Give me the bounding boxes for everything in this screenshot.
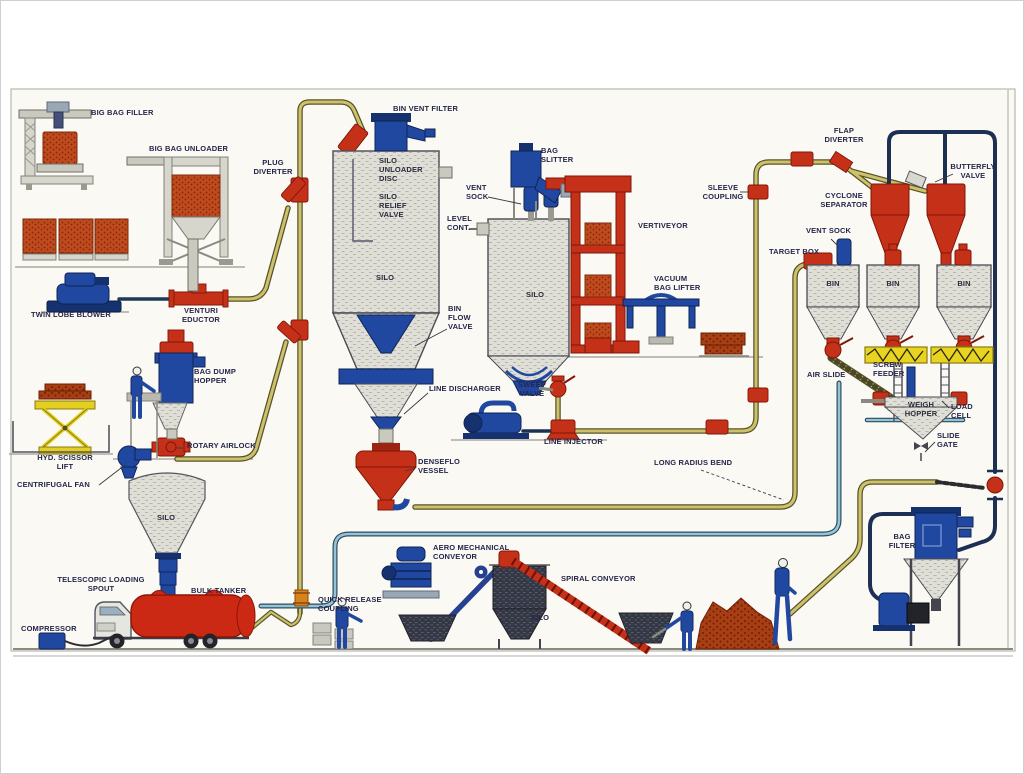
quick-release-coupling <box>293 590 310 606</box>
label-air-slide: AIR SLIDE <box>807 371 845 380</box>
label-target-box: TARGET BOX <box>769 248 819 257</box>
label-vent-sock-right: VENT SOCK <box>806 227 851 236</box>
label-bin-1: BIN <box>826 280 839 289</box>
label-quick-release-coupling: QUICK RELEASE COUPLING <box>318 596 382 614</box>
label-vertiveyor: VERTIVEYOR <box>638 222 688 231</box>
label-bag-slitter: BAG SLITTER <box>541 147 573 165</box>
label-big-bag-unloader: BIG BAG UNLOADER <box>149 145 228 154</box>
label-rotary-airlock: ROTARY AIRLOCK <box>187 442 256 451</box>
label-vent-sock-left: VENT SOCK <box>466 184 488 202</box>
label-long-radius-bend: LONG RADIUS BEND <box>654 459 732 468</box>
label-venturi-eductor: VENTURI EDUCTOR <box>182 307 220 325</box>
label-bin-2: BIN <box>886 280 899 289</box>
label-bag-filter: BAG FILTER <box>889 533 916 551</box>
label-silo-relief-valve: SILO RELIEF VALVE <box>379 193 407 219</box>
label-sleeve-coupling: SLEEVE COUPLING <box>703 184 744 202</box>
label-bin-vent-filter: BIN VENT FILTER <box>393 105 458 114</box>
label-hyd-scissor-lift: HYD. SCISSOR LIFT <box>37 454 93 472</box>
line-coupling-fitting <box>706 420 728 434</box>
label-silo-unloader-disc: SILO UNLOADER DISC <box>379 157 423 183</box>
label-bin-flow-valve: BIN FLOW VALVE <box>448 305 473 331</box>
label-silo-main: SILO <box>376 274 394 283</box>
label-spiral-conveyor: SPIRAL CONVEYOR <box>561 575 636 584</box>
label-flap-diverter: FLAP DIVERTER <box>824 127 863 145</box>
label-aero-mechanical-conveyor: AERO MECHANICAL CONVEYOR <box>433 544 509 562</box>
label-plug-diverter: PLUG DIVERTER <box>253 159 292 177</box>
label-telescopic-loading-spout: TELESCOPIC LOADING SPOUT <box>57 576 144 594</box>
process-diagram: BIG BAG FILLER BIG BAG UNLOADER PLUG DIV… <box>0 0 1024 774</box>
label-sweep-valve: SWEEP VALVE <box>518 381 546 399</box>
label-silo-2: SILO <box>526 291 544 300</box>
label-cyclone-separator: CYCLONE SEPARATOR <box>820 192 867 210</box>
label-silo-bottom: SILO <box>531 614 549 623</box>
label-vacuum-bag-lifter: VACUUM BAG LIFTER <box>654 275 701 293</box>
label-screw-feeder: SCREW FEEDER <box>873 361 904 379</box>
label-bag-dump-hopper: BAG DUMP HOPPER <box>194 368 236 386</box>
big-bag-stockpile <box>23 219 128 260</box>
label-butterfly-valve: BUTTERFLY VALVE <box>950 163 995 181</box>
sleeve-coupling-fitting <box>748 185 768 199</box>
label-twin-lobe-blower: TWIN LOBE BLOWER <box>31 311 111 320</box>
label-bin-3: BIN <box>957 280 970 289</box>
label-centrifugal-fan: CENTRIFUGAL FAN <box>17 481 90 490</box>
label-silo-left: SILO <box>157 514 175 523</box>
label-load-cell: LOAD CELL <box>951 403 973 421</box>
label-slide-gate: SLIDE GATE <box>937 432 960 450</box>
label-compressor: COMPRESSOR <box>21 625 77 634</box>
label-line-discharger: LINE DISCHARGER <box>429 385 501 394</box>
label-weigh-hopper: WEIGH HOPPER <box>905 401 938 419</box>
label-big-bag-filler: BIG BAG FILLER <box>91 109 154 118</box>
diagram-artwork <box>1 1 1024 774</box>
flap-diverter-fitting <box>791 152 813 166</box>
sleeve-coupling-fitting-2 <box>748 388 768 402</box>
label-level-cont: LEVEL CONT. <box>447 215 472 233</box>
label-line-injector: LINE INJECTOR <box>544 438 603 447</box>
label-denseflo-vessel: DENSEFLO VESSEL <box>418 458 460 476</box>
label-bulk-tanker: BULK TANKER <box>191 587 246 596</box>
